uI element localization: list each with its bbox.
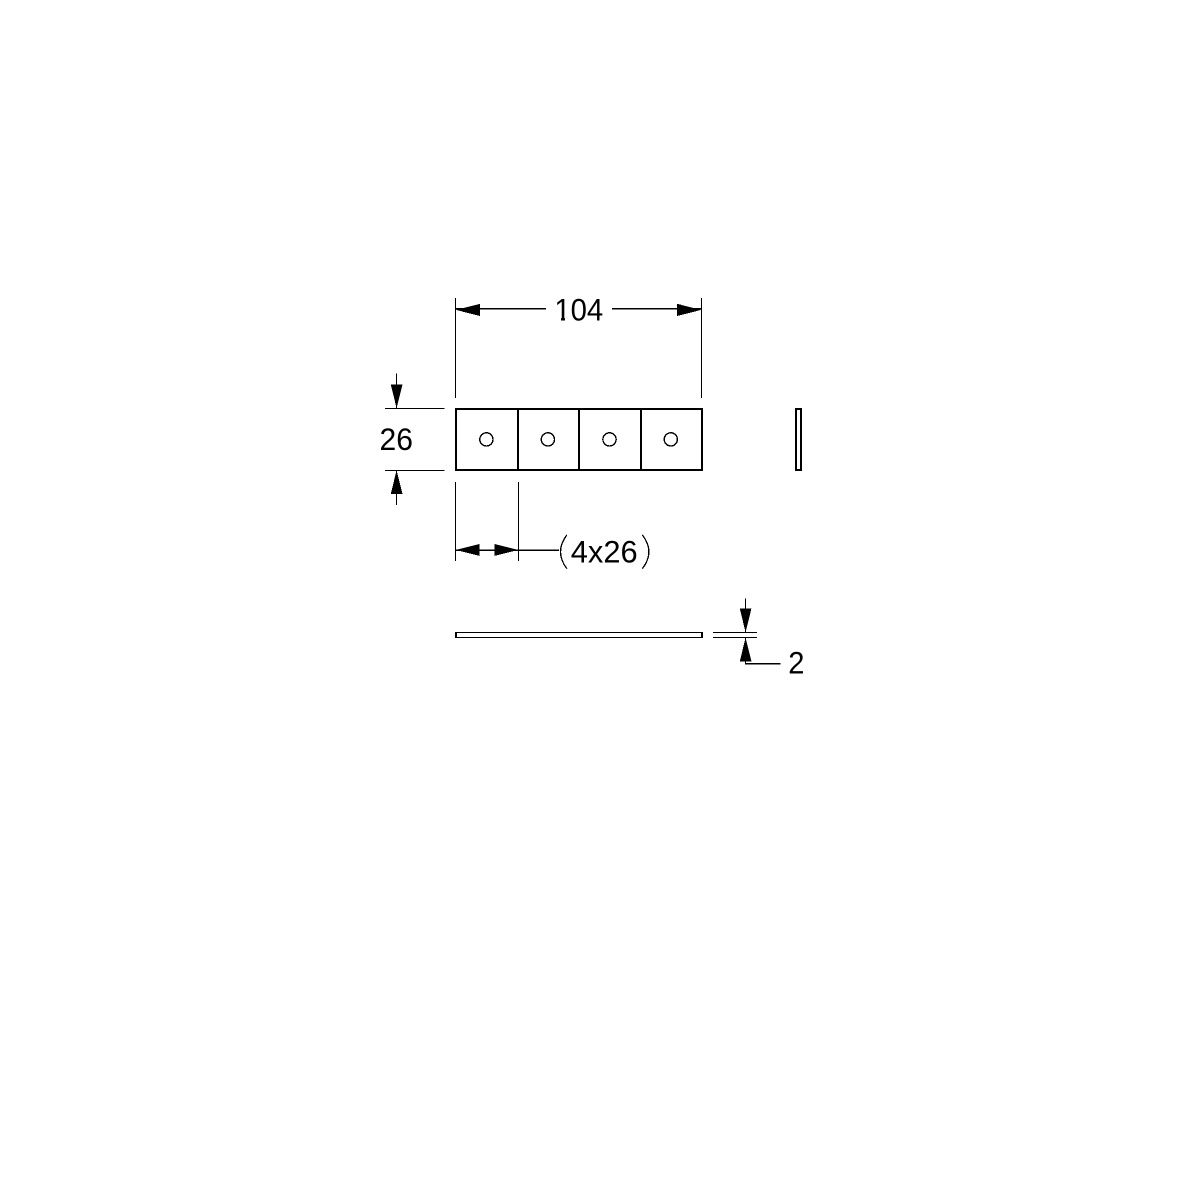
svg-text:26: 26 (380, 422, 413, 457)
svg-text:104: 104 (554, 293, 603, 328)
svg-text:4x26: 4x26 (571, 534, 638, 569)
svg-text:2: 2 (788, 646, 804, 681)
